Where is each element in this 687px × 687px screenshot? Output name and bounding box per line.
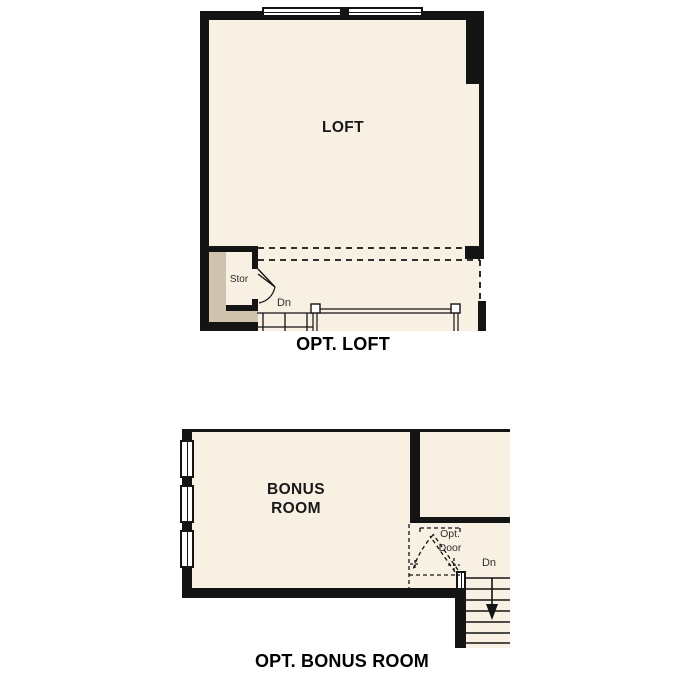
opt-door-label-line1: Opt. xyxy=(424,528,476,542)
floorplan-sheet: LOFT Stor Dn OPT. LOFT xyxy=(0,0,687,687)
loft-wall-left xyxy=(200,11,209,331)
stor-poche-bottom xyxy=(209,311,258,322)
loft-wall-bottom-left xyxy=(200,322,258,331)
window-icon xyxy=(262,7,342,17)
loft-dn-label: Dn xyxy=(272,297,296,311)
window-icon xyxy=(347,7,423,17)
bonus-room-label: BONUS ROOM xyxy=(236,480,356,518)
window-icon xyxy=(180,485,194,523)
bonus-cut-line-top xyxy=(182,429,510,432)
loft-plan: LOFT Stor Dn OPT. LOFT xyxy=(0,0,687,360)
down-arrow-icon xyxy=(486,578,498,620)
bonus-stairs-icon xyxy=(466,572,510,648)
bonus-stair-wall xyxy=(455,588,466,648)
bonus-caption: OPT. BONUS ROOM xyxy=(192,651,492,671)
bonus-dn-label: Dn xyxy=(477,557,501,571)
bonus-room-label-line2: ROOM xyxy=(236,499,356,518)
opt-door-label-line2: Door xyxy=(424,542,476,556)
loft-wall-right-thin xyxy=(479,84,484,246)
window-icon xyxy=(180,530,194,568)
bonus-room-plan: BONUS ROOM Opt. Door Dn OPT. BONUS ROOM xyxy=(0,400,687,687)
stor-label: Stor xyxy=(225,273,253,287)
opt-door-label: Opt. Door xyxy=(424,528,476,555)
bonus-wall-interior-vertical xyxy=(410,429,420,522)
loft-caption: OPT. LOFT xyxy=(243,334,443,354)
loft-wall-right-thick xyxy=(466,11,484,84)
loft-room-label: LOFT xyxy=(293,118,393,137)
window-icon xyxy=(180,440,194,478)
bonus-room-label-line1: BONUS xyxy=(236,480,356,499)
stor-wall-top xyxy=(200,246,258,252)
bonus-floor-fill-right xyxy=(420,431,510,517)
loft-railing-icon xyxy=(308,302,468,331)
